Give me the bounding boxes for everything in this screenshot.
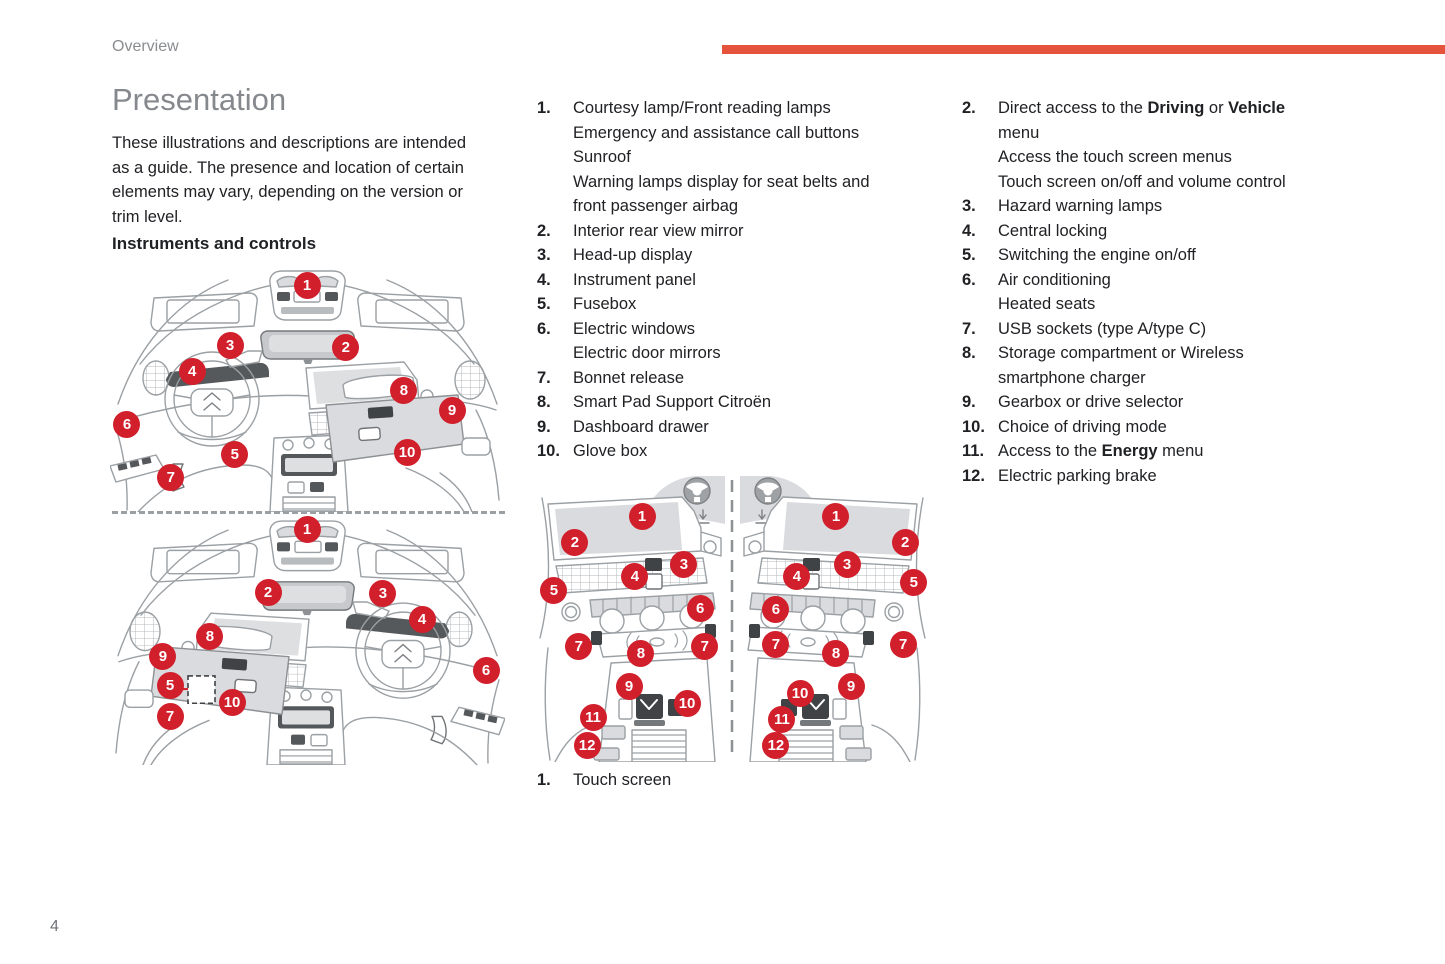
legend-item-number: 5. — [537, 292, 573, 317]
legend-item-line: Storage compartment or Wireless — [998, 341, 1362, 366]
legend-item-number: 4. — [537, 268, 573, 293]
callout-marker-2: 2 — [561, 529, 588, 556]
legend-item-line: Courtesy lamp/Front reading lamps — [573, 96, 922, 121]
legend-item-number: 7. — [962, 317, 998, 342]
legend-item-line: Touch screen — [573, 768, 922, 793]
callout-marker-2: 2 — [255, 579, 282, 606]
callout-marker-4: 4 — [409, 606, 436, 633]
legend-item-line: Switching the engine on/off — [998, 243, 1362, 268]
legend-item-number: 6. — [537, 317, 573, 366]
fusebox-dashed-outline — [188, 676, 215, 703]
diagram-divider-horizontal — [112, 511, 505, 514]
legend-item-line: Fusebox — [573, 292, 922, 317]
callout-marker-7: 7 — [157, 464, 184, 491]
callout-marker-8: 8 — [196, 623, 223, 650]
legend-item-line: Warning lamps display for seat belts and — [573, 170, 922, 195]
callout-marker-9: 9 — [149, 643, 176, 670]
legend-item-number: 10. — [537, 439, 573, 464]
legend-item: 6.Air conditioningHeated seats — [962, 268, 1362, 317]
legend-item-line: Direct access to the Driving or Vehicle — [998, 96, 1362, 121]
legend-item-line: Touch screen on/off and volume control — [998, 170, 1362, 195]
legend-item: 1.Courtesy lamp/Front reading lampsEmerg… — [537, 96, 922, 219]
callout-marker-10: 10 — [787, 680, 814, 707]
callout-marker-10: 10 — [394, 439, 421, 466]
legend-item: 8.Smart Pad Support Citroën — [537, 390, 922, 415]
legend-item-line: Hazard warning lamps — [998, 194, 1362, 219]
callout-marker-5: 5 — [157, 672, 184, 699]
callout-marker-12: 12 — [574, 732, 601, 759]
legend-item: 3.Head-up display — [537, 243, 922, 268]
callout-marker-8: 8 — [627, 640, 654, 667]
callout-marker-6: 6 — [473, 657, 500, 684]
callout-marker-2: 2 — [332, 334, 359, 361]
legend-item-line: Access to the Energy menu — [998, 439, 1362, 464]
legend-item: 11.Access to the Energy menu — [962, 439, 1362, 464]
callout-marker-1: 1 — [294, 272, 321, 299]
callout-marker-3: 3 — [369, 580, 396, 607]
legend-item-line: Central locking — [998, 219, 1362, 244]
legend-item-number: 6. — [962, 268, 998, 317]
legend-item-number: 9. — [537, 415, 573, 440]
callout-marker-5: 5 — [540, 577, 567, 604]
intro-line: as a guide. The presence and location of… — [112, 156, 522, 181]
section-accent-bar — [722, 45, 1445, 54]
legend-item-line: Electric parking brake — [998, 464, 1362, 489]
callout-marker-10: 10 — [674, 690, 701, 717]
page-title: Presentation — [112, 82, 286, 118]
callout-marker-12: 12 — [762, 732, 789, 759]
intro-paragraph: These illustrations and descriptions are… — [112, 131, 522, 229]
legend-item: 10.Choice of driving mode — [962, 415, 1362, 440]
legend-item: 4.Instrument panel — [537, 268, 922, 293]
legend-item-number: 4. — [962, 219, 998, 244]
callout-marker-1: 1 — [822, 503, 849, 530]
callout-marker-1: 1 — [294, 516, 321, 543]
callout-marker-9: 9 — [616, 673, 643, 700]
intro-line: These illustrations and descriptions are… — [112, 131, 522, 156]
callout-marker-3: 3 — [670, 551, 697, 578]
legend-item-line: USB sockets (type A/type C) — [998, 317, 1362, 342]
legend-console-controls: 2.Direct access to the Driving or Vehicl… — [962, 96, 1362, 488]
legend-item-line: front passenger airbag — [573, 194, 922, 219]
legend-item-number: 2. — [537, 219, 573, 244]
legend-item-number: 2. — [962, 96, 998, 194]
callout-marker-5: 5 — [900, 569, 927, 596]
legend-item-line: Air conditioning — [998, 268, 1362, 293]
legend-item-number: 9. — [962, 390, 998, 415]
legend-item-line: Emergency and assistance call buttons — [573, 121, 922, 146]
legend-item: 5.Switching the engine on/off — [962, 243, 1362, 268]
legend-item: 2.Direct access to the Driving or Vehicl… — [962, 96, 1362, 194]
legend-item-number: 8. — [962, 341, 998, 390]
intro-line: trim level. — [112, 205, 522, 230]
callout-marker-11: 11 — [580, 704, 607, 731]
legend-item: 4.Central locking — [962, 219, 1362, 244]
legend-item: 6.Electric windowsElectric door mirrors — [537, 317, 922, 366]
dashboard-diagram-rhd: 12345678910 — [110, 518, 505, 765]
legend-item-number: 5. — [962, 243, 998, 268]
legend-item-line: smartphone charger — [998, 366, 1362, 391]
legend-item-line: Glove box — [573, 439, 922, 464]
legend-item-line: menu — [998, 121, 1362, 146]
legend-item-number: 3. — [962, 194, 998, 219]
manual-page: { "page": { "header": "Overview", "page_… — [0, 0, 1445, 964]
legend-item-line: Electric windows — [573, 317, 922, 342]
callout-marker-1: 1 — [629, 503, 656, 530]
legend-item-line: Access the touch screen menus — [998, 145, 1362, 170]
callout-marker-3: 3 — [217, 332, 244, 359]
callout-marker-8: 8 — [390, 377, 417, 404]
callout-marker-9: 9 — [439, 397, 466, 424]
legend-item-line: Heated seats — [998, 292, 1362, 317]
callout-marker-7: 7 — [890, 631, 917, 658]
legend-item-line: Dashboard drawer — [573, 415, 922, 440]
legend-item: 2.Interior rear view mirror — [537, 219, 922, 244]
legend-item: 7.Bonnet release — [537, 366, 922, 391]
legend-item-line: Head-up display — [573, 243, 922, 268]
callout-marker-2: 2 — [892, 529, 919, 556]
legend-item-line: Electric door mirrors — [573, 341, 922, 366]
legend-item-number: 7. — [537, 366, 573, 391]
legend-item: 3.Hazard warning lamps — [962, 194, 1362, 219]
legend-item-line: Interior rear view mirror — [573, 219, 922, 244]
legend-item-number: 1. — [537, 96, 573, 219]
legend-item: 8.Storage compartment or Wirelesssmartph… — [962, 341, 1362, 390]
legend-item: 7.USB sockets (type A/type C) — [962, 317, 1362, 342]
legend-item: 12.Electric parking brake — [962, 464, 1362, 489]
intro-line: elements may vary, depending on the vers… — [112, 180, 522, 205]
legend-item: 9.Dashboard drawer — [537, 415, 922, 440]
legend-console-caption: 1.Touch screen — [537, 768, 922, 793]
legend-item-line: Instrument panel — [573, 268, 922, 293]
dashboard-diagram-lhd: 12345678910 — [110, 268, 505, 512]
legend-item-line: Choice of driving mode — [998, 415, 1362, 440]
callout-marker-3: 3 — [834, 551, 861, 578]
callout-marker-7: 7 — [157, 703, 184, 730]
legend-item: 9.Gearbox or drive selector — [962, 390, 1362, 415]
legend-item-number: 3. — [537, 243, 573, 268]
legend-item-number: 11. — [962, 439, 998, 464]
callout-marker-4: 4 — [179, 358, 206, 385]
legend-item-line: Smart Pad Support Citroën — [573, 390, 922, 415]
callout-marker-6: 6 — [687, 595, 714, 622]
callout-marker-9: 9 — [838, 673, 865, 700]
section-subheading: Instruments and controls — [112, 234, 316, 254]
legend-item-number: 12. — [962, 464, 998, 489]
center-console-diagram: 12345677891011121234567789101112 — [535, 470, 930, 762]
legend-item-number: 10. — [962, 415, 998, 440]
legend-item: 1.Touch screen — [537, 768, 922, 793]
page-number: 4 — [50, 918, 59, 936]
legend-instruments-and-controls: 1.Courtesy lamp/Front reading lampsEmerg… — [537, 96, 922, 464]
legend-item: 10.Glove box — [537, 439, 922, 464]
legend-item-number: 1. — [537, 768, 573, 793]
breadcrumb: Overview — [112, 38, 179, 56]
legend-item-line: Bonnet release — [573, 366, 922, 391]
legend-item-line: Gearbox or drive selector — [998, 390, 1362, 415]
callout-marker-11: 11 — [768, 706, 795, 733]
legend-item-line: Sunroof — [573, 145, 922, 170]
legend-item-number: 8. — [537, 390, 573, 415]
legend-item: 5.Fusebox — [537, 292, 922, 317]
callout-marker-10: 10 — [219, 689, 246, 716]
